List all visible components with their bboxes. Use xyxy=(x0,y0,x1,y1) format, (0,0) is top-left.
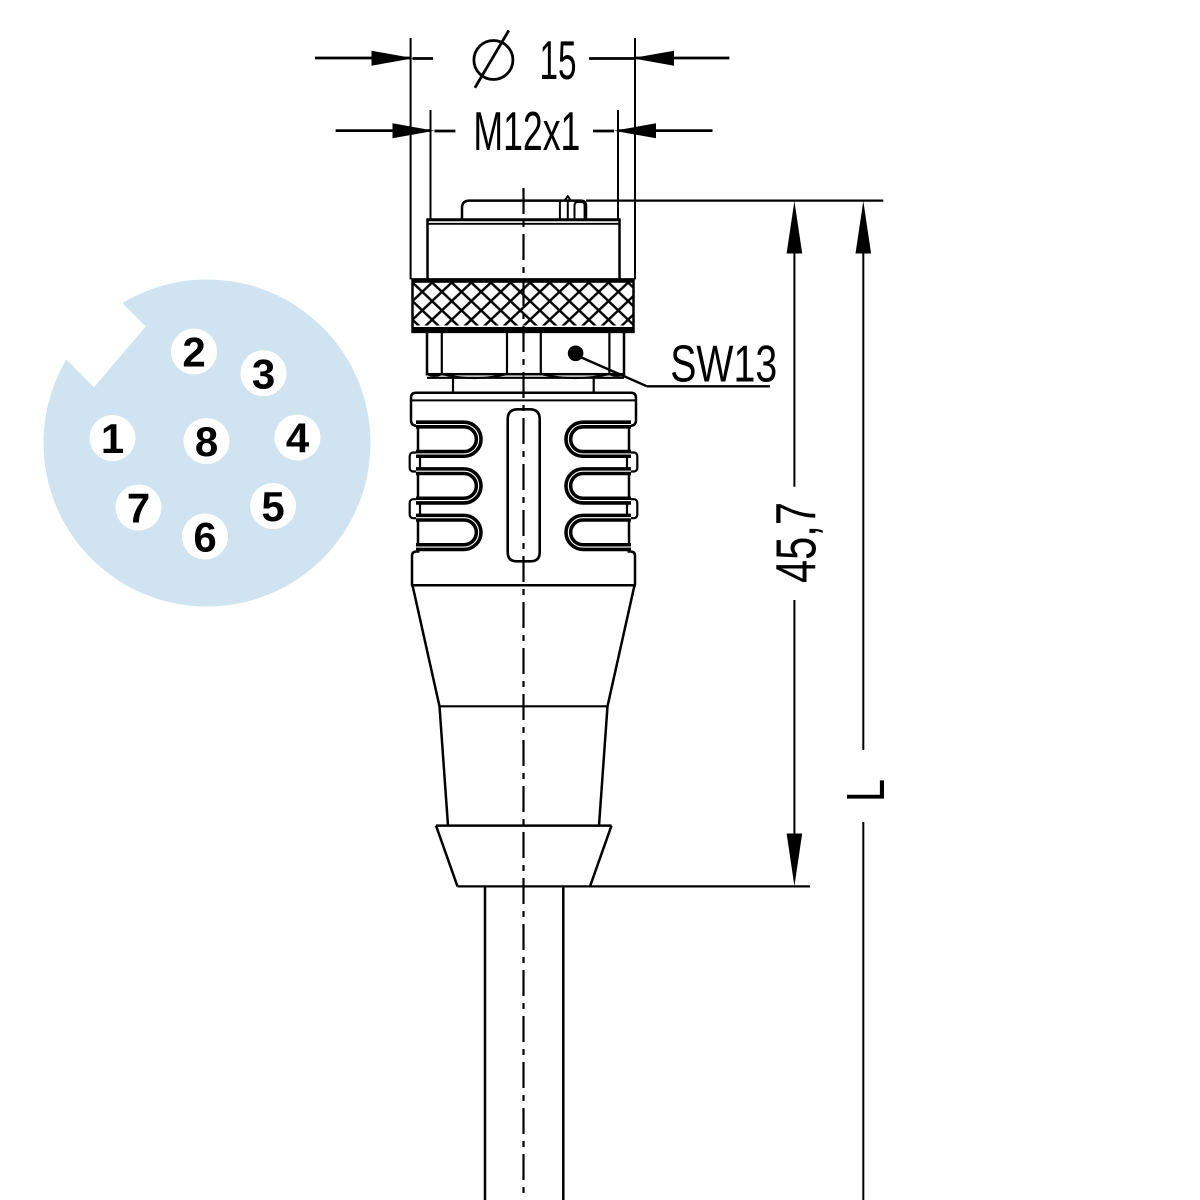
svg-text:7: 7 xyxy=(127,485,150,532)
svg-text:M12x1: M12x1 xyxy=(473,100,580,162)
svg-text:L: L xyxy=(836,779,896,802)
svg-text:45,7: 45,7 xyxy=(764,502,828,583)
svg-text:8: 8 xyxy=(195,418,218,465)
svg-text:4: 4 xyxy=(286,415,310,462)
svg-text:5: 5 xyxy=(261,483,284,530)
svg-text:SW13: SW13 xyxy=(670,336,777,394)
svg-text:3: 3 xyxy=(252,350,275,397)
svg-text:1: 1 xyxy=(101,415,124,462)
svg-text:2: 2 xyxy=(182,329,205,376)
svg-text:6: 6 xyxy=(193,514,216,561)
svg-text:15: 15 xyxy=(540,29,577,91)
